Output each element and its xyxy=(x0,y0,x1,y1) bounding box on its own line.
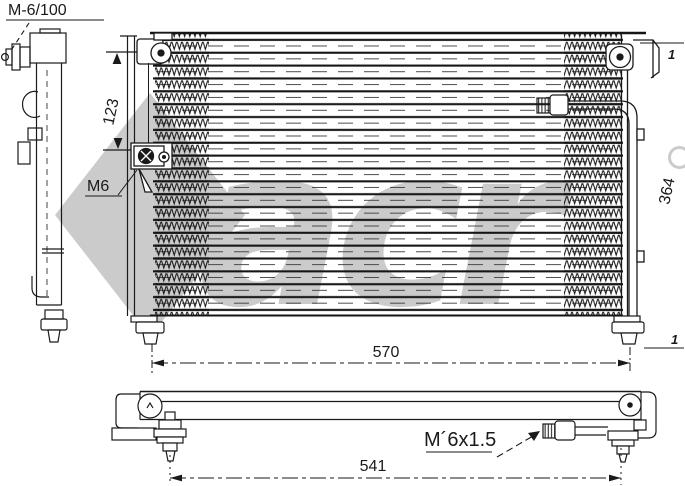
front-view: 123 M6 xyxy=(85,33,659,344)
dim-541 xyxy=(170,448,621,485)
condenser-drawing-page: acr xyxy=(0,0,685,486)
side-view-hook-bracket xyxy=(23,91,40,117)
dim-570-label: 570 xyxy=(373,344,400,361)
callout-1-bottom: 1 xyxy=(671,332,678,347)
left-tank xyxy=(120,36,137,316)
side-view-mount-foot xyxy=(41,310,67,342)
fin-band-right xyxy=(564,34,622,316)
port-spec-leader xyxy=(6,20,104,49)
side-view-port-fitting xyxy=(2,44,30,70)
side-view-lower-hook xyxy=(32,276,49,297)
fin-band-left xyxy=(155,34,209,316)
dim-364-label: 364 xyxy=(656,176,678,206)
condenser-line-art: 123 M6 xyxy=(0,0,685,486)
plan-view xyxy=(112,392,656,463)
side-view-header-block xyxy=(30,33,66,63)
dim-541-label: 541 xyxy=(360,458,387,475)
side-view xyxy=(2,29,67,342)
plan-right-end xyxy=(543,392,656,462)
condenser-core xyxy=(153,34,623,316)
dim-123-label: 123 xyxy=(100,97,122,127)
port-spec-label: M-6/100 xyxy=(8,2,67,19)
front-view-feet xyxy=(131,316,644,344)
plan-right-fitting xyxy=(608,431,638,462)
plan-left-end xyxy=(112,394,186,461)
threaded-union-front xyxy=(537,95,568,115)
thread-spec-label: M´6x1.5 xyxy=(424,429,496,451)
m6-label: M6 xyxy=(87,178,109,195)
plan-threaded-union xyxy=(543,424,555,438)
callout-1-top: 1 xyxy=(668,47,675,62)
